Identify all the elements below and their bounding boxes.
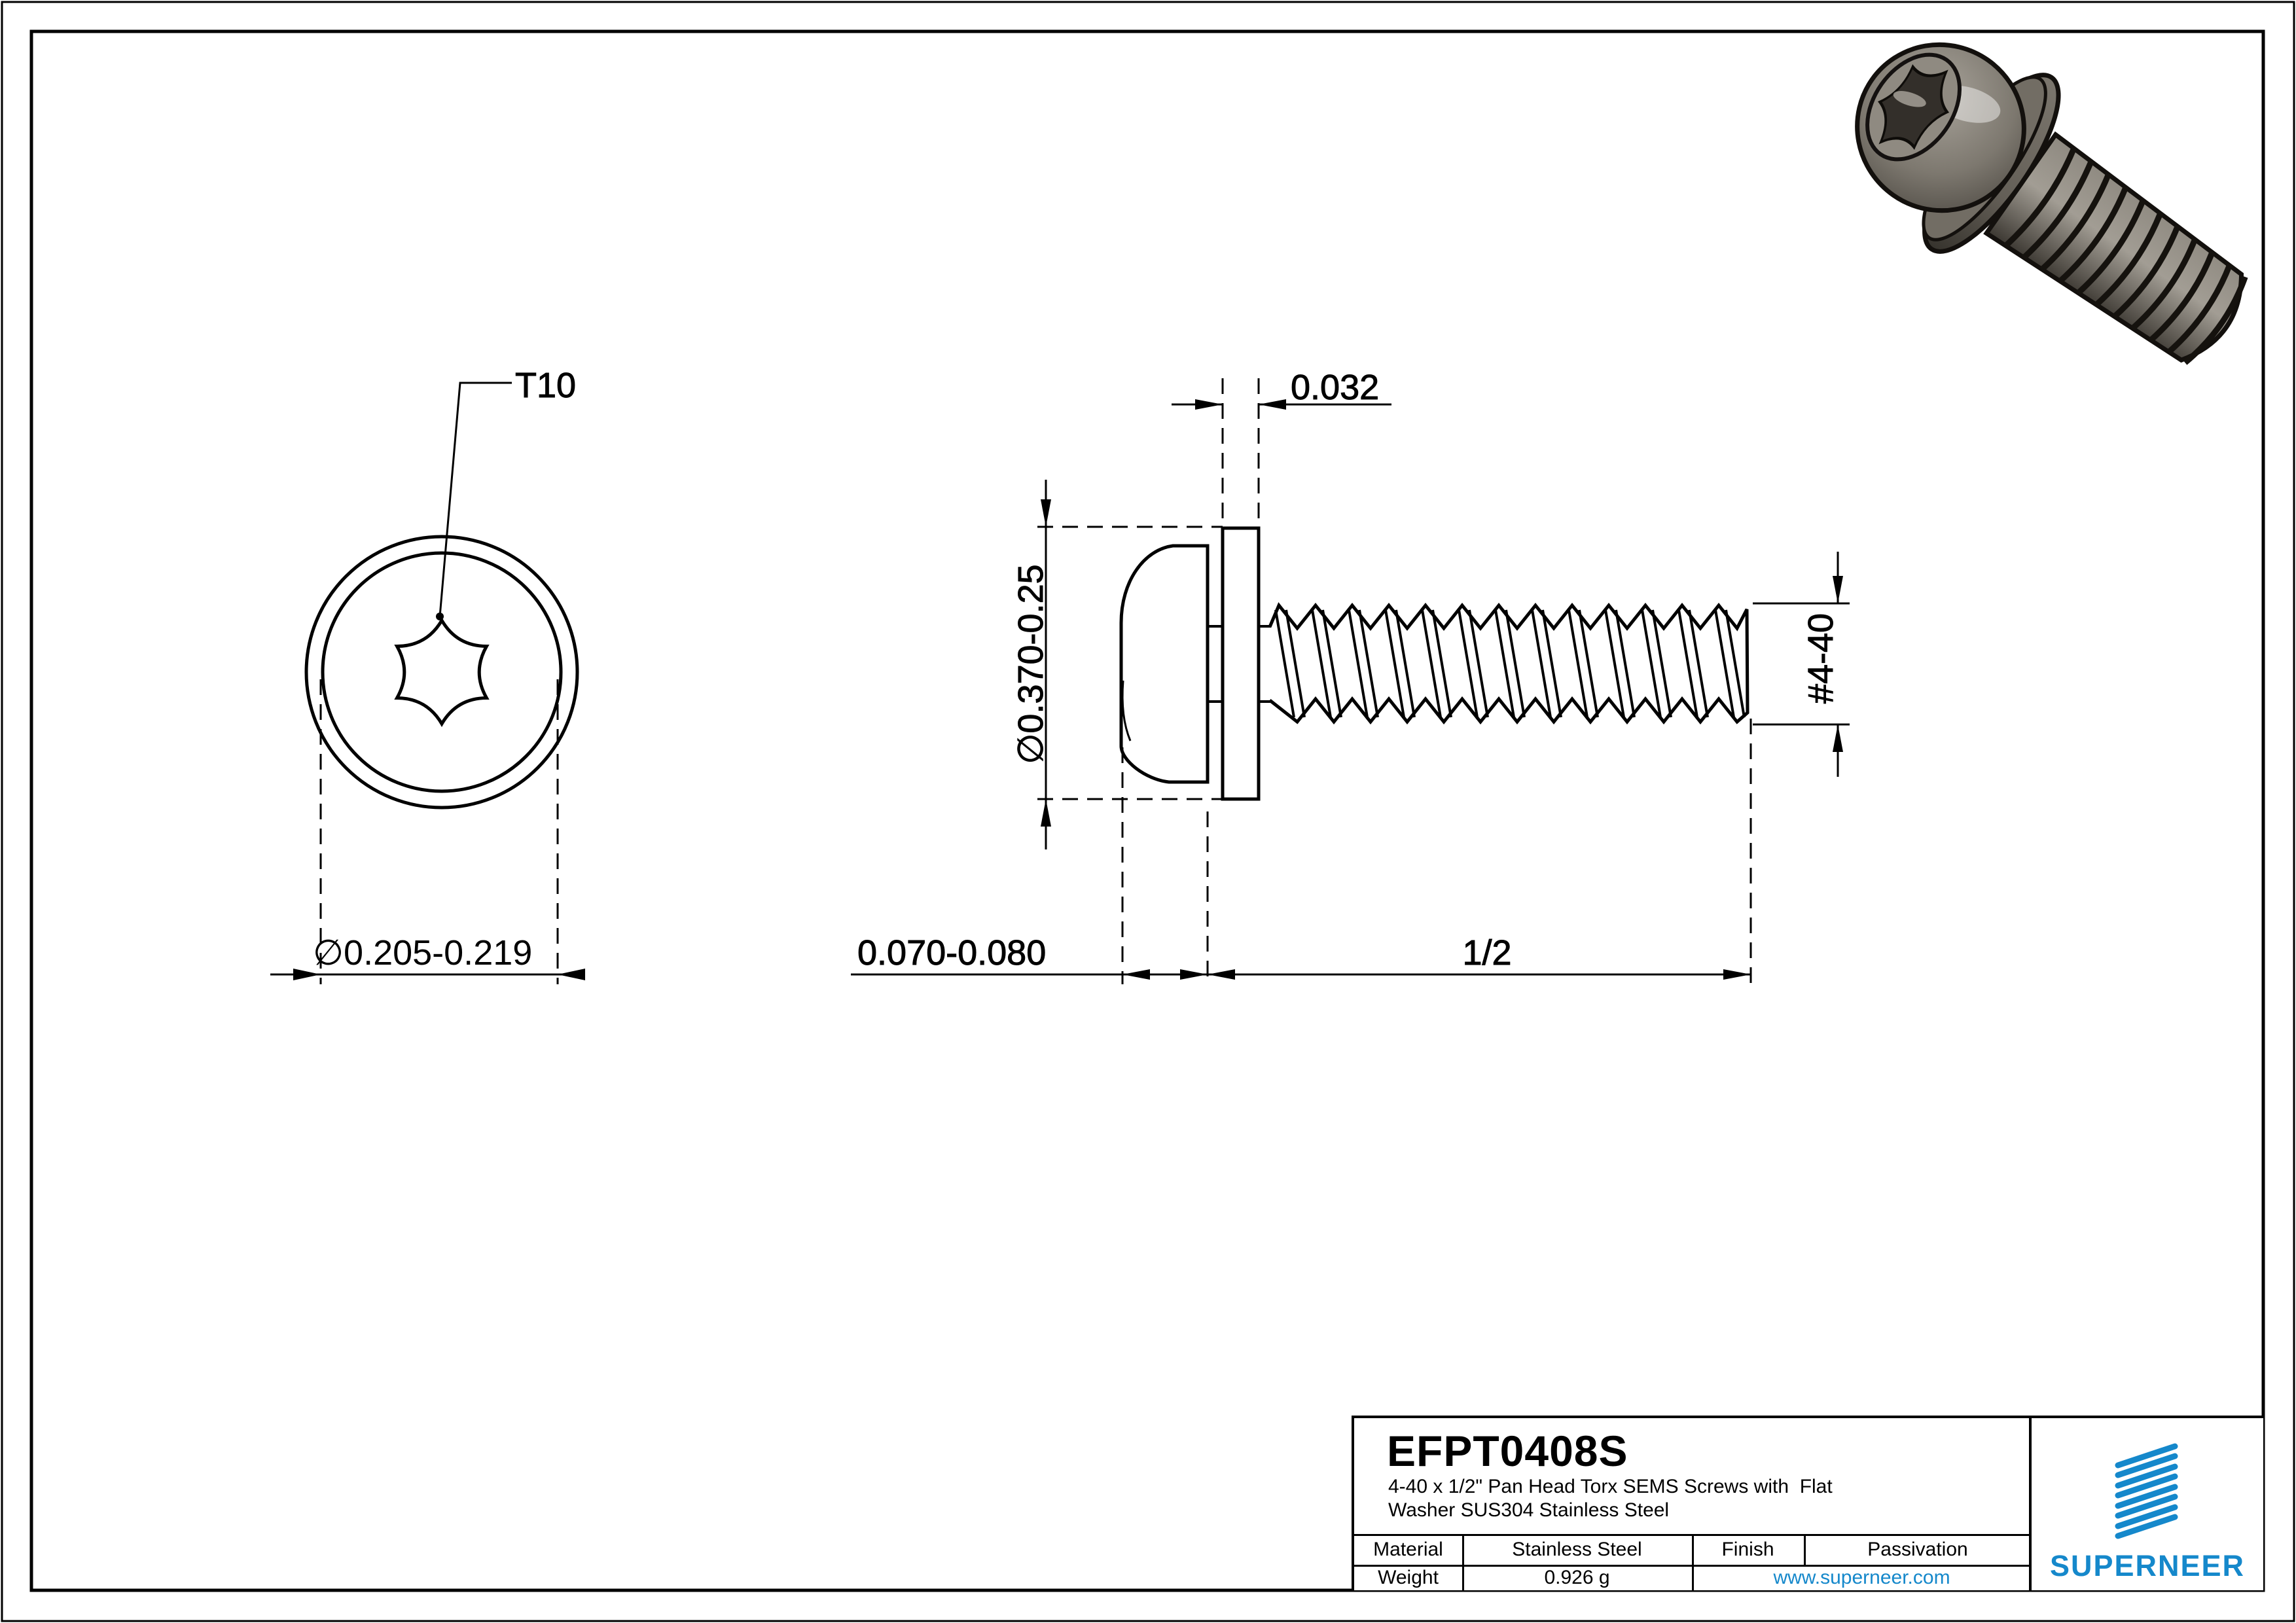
website-link[interactable]: www.superneer.com: [1692, 1565, 2032, 1590]
arrowhead: [1122, 969, 1150, 980]
flat-washer-profile: [1223, 528, 1259, 799]
arrowhead: [1208, 969, 1235, 980]
title-block-info: EFPT0408S 4-40 x 1/2" Pan Head Torx SEMS…: [1354, 1418, 2029, 1534]
torx-leader-dot: [436, 613, 444, 620]
torx-size-label: T10: [515, 366, 576, 405]
washer-outline-circle: [306, 537, 577, 808]
arrowhead: [1195, 399, 1223, 410]
top-view: T10 ∅0.205-0.219: [270, 366, 585, 984]
part-description-line1: 4-40 x 1/2" Pan Head Torx SEMS Screws wi…: [1388, 1476, 1833, 1498]
arrowhead: [1723, 969, 1751, 980]
arrowhead: [1041, 799, 1051, 827]
arrowhead: [558, 969, 585, 980]
material-value: Stainless Steel: [1462, 1534, 1692, 1565]
arrowhead: [1041, 499, 1051, 527]
arrowhead: [1259, 399, 1286, 410]
material-label: Material: [1354, 1534, 1462, 1565]
cad-drawing: T10 ∅0.205-0.219: [0, 0, 2296, 1623]
finish-value: Passivation: [1804, 1534, 2032, 1565]
washer-thickness-dim: 0.032: [1291, 368, 1379, 407]
logo-cell: SUPERNEER: [2029, 1418, 2263, 1590]
head-diameter-dim: ∅0.205-0.219: [313, 933, 532, 972]
arrowhead: [1180, 969, 1208, 980]
screw-length-dim: 1/2: [1462, 933, 1511, 972]
torx-recess-outline: [397, 620, 487, 724]
finish-label: Finish: [1692, 1534, 1804, 1565]
superneer-logo-icon: [2109, 1430, 2187, 1541]
title-block: EFPT0408S 4-40 x 1/2" Pan Head Torx SEMS…: [1352, 1416, 2263, 1590]
washer-od-dim: ∅0.370-0.25: [1011, 564, 1050, 764]
screw-3d-render: [1812, 0, 2286, 413]
head-height-dim: 0.070-0.080: [857, 933, 1046, 972]
part-number: EFPT0408S: [1387, 1426, 1628, 1476]
thread-size-dim: #4-40: [1801, 613, 1840, 704]
inner-page-border: [31, 31, 2263, 1590]
arrowhead: [1833, 576, 1843, 603]
side-view: 0.032 ∅0.370-0.25 #4-40 0: [851, 368, 1850, 984]
arrowhead: [1833, 724, 1843, 752]
drawing-sheet: T10 ∅0.205-0.219: [0, 0, 2296, 1623]
thread-flank-lines: [1276, 610, 1744, 717]
part-description-line2: Washer SUS304 Stainless Steel: [1388, 1499, 1669, 1522]
pan-head-profile: [1121, 546, 1208, 782]
torx-leader-line: [440, 383, 512, 616]
weight-value: 0.926 g: [1462, 1565, 1692, 1590]
weight-label: Weight: [1354, 1565, 1462, 1590]
brand-name: SUPERNEER: [2032, 1549, 2263, 1583]
